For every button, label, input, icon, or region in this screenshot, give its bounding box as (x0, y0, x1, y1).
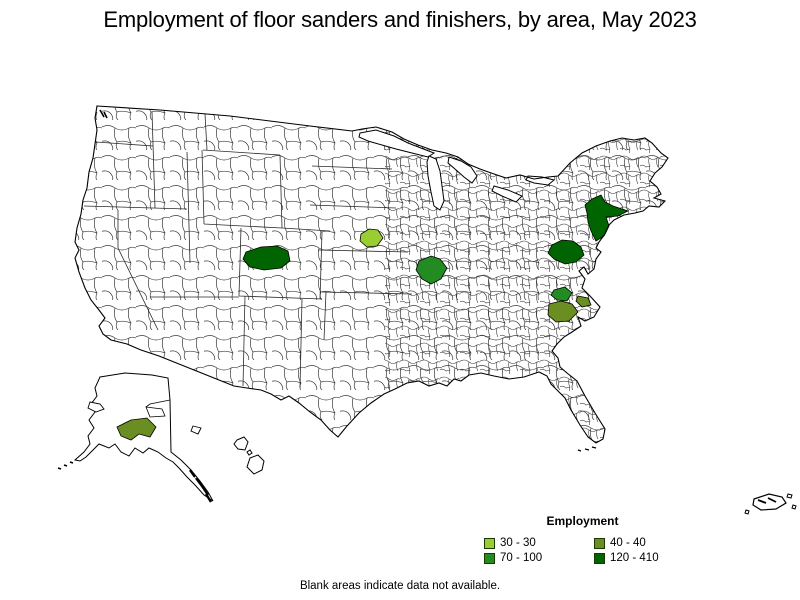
hawaii-island-3 (247, 455, 264, 474)
legend-item: 70 - 100 (484, 552, 594, 564)
legend-item-label: 40 - 40 (610, 537, 646, 549)
footnote: Blank areas indicate data not available. (0, 580, 800, 592)
legend-title: Employment (470, 514, 695, 528)
legend-swatch-icon (594, 553, 605, 564)
legend-swatch-icon (484, 538, 495, 549)
alaska-panhandle-islands (190, 470, 211, 502)
legend-item-label: 120 - 410 (610, 552, 659, 564)
legend-item: 30 - 30 (484, 537, 594, 549)
florida-keys (578, 447, 596, 451)
puerto-rico-inset (745, 494, 796, 514)
legend-grid: 30 - 30 40 - 40 70 - 100 120 - 410 (470, 537, 695, 564)
hawaii-island-1 (234, 437, 248, 450)
alaska-inset (58, 373, 213, 502)
legend-item-label: 30 - 30 (500, 537, 536, 549)
legend-swatch-icon (594, 538, 605, 549)
puerto-rico-outline (753, 494, 786, 510)
us-employment-map (0, 0, 800, 600)
legend-item: 120 - 410 (594, 552, 699, 564)
kodiak-island (191, 426, 201, 434)
alaska-outline (75, 373, 213, 501)
aleutian-islands (58, 462, 73, 469)
hawaii-inset (234, 437, 264, 474)
legend-item-label: 70 - 100 (500, 552, 542, 564)
hawaii-island-2 (247, 450, 252, 455)
map-page: Employment of floor sanders and finisher… (0, 0, 800, 600)
legend-swatch-icon (484, 553, 495, 564)
legend-item: 40 - 40 (594, 537, 699, 549)
legend: Employment 30 - 30 40 - 40 70 - 100 (470, 514, 695, 564)
